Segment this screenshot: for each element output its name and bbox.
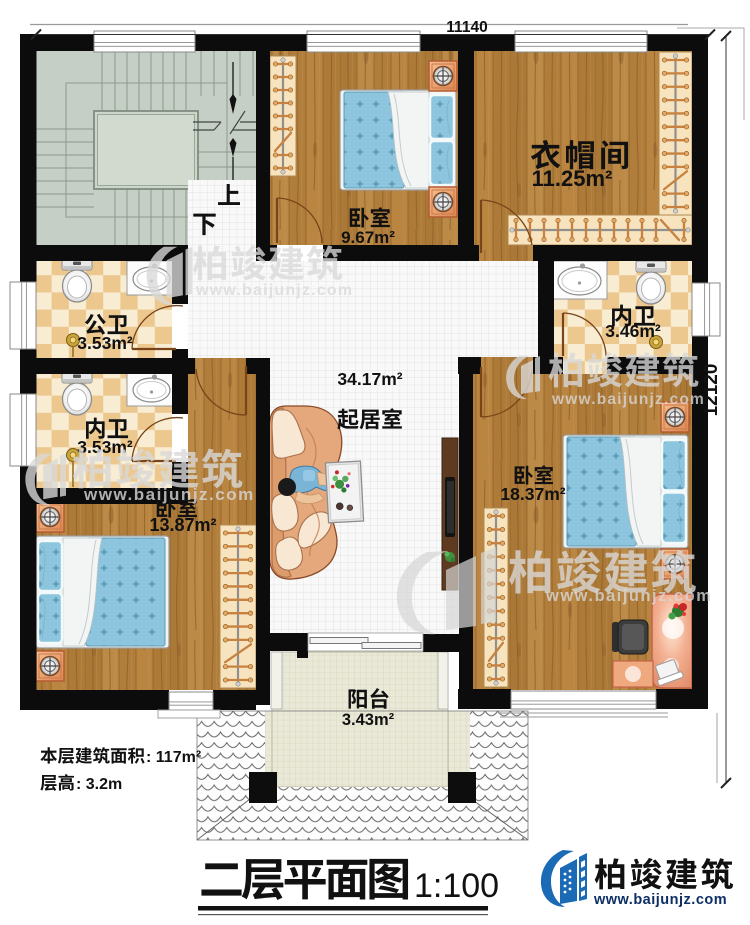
svg-text:18.37m²: 18.37m² — [500, 484, 565, 504]
svg-text:www.baijunjz.com: www.baijunjz.com — [551, 391, 705, 408]
svg-text:3.53m²: 3.53m² — [77, 333, 133, 353]
svg-text:3.46m²: 3.46m² — [605, 321, 661, 341]
svg-text:12120: 12120 — [701, 364, 722, 417]
svg-text:11140: 11140 — [446, 19, 487, 36]
svg-text:34.17m²: 34.17m² — [337, 369, 402, 389]
svg-text:www.baijunjz.com: www.baijunjz.com — [83, 485, 255, 504]
svg-text:13.87m²: 13.87m² — [149, 515, 216, 535]
svg-text:11.25m²: 11.25m² — [532, 166, 613, 191]
svg-text:www.baijunjz.com: www.baijunjz.com — [545, 587, 712, 605]
svg-text:: 117m²: : 117m² — [146, 749, 201, 766]
svg-text:1:100: 1:100 — [414, 867, 499, 905]
svg-text:www.baijunjz.com: www.baijunjz.com — [593, 892, 727, 908]
svg-text:9.67m²: 9.67m² — [341, 228, 395, 247]
svg-text:: 3.2m: : 3.2m — [76, 776, 122, 793]
svg-text:www.baijunjz.com: www.baijunjz.com — [195, 282, 353, 299]
svg-text:3.43m²: 3.43m² — [342, 711, 395, 729]
